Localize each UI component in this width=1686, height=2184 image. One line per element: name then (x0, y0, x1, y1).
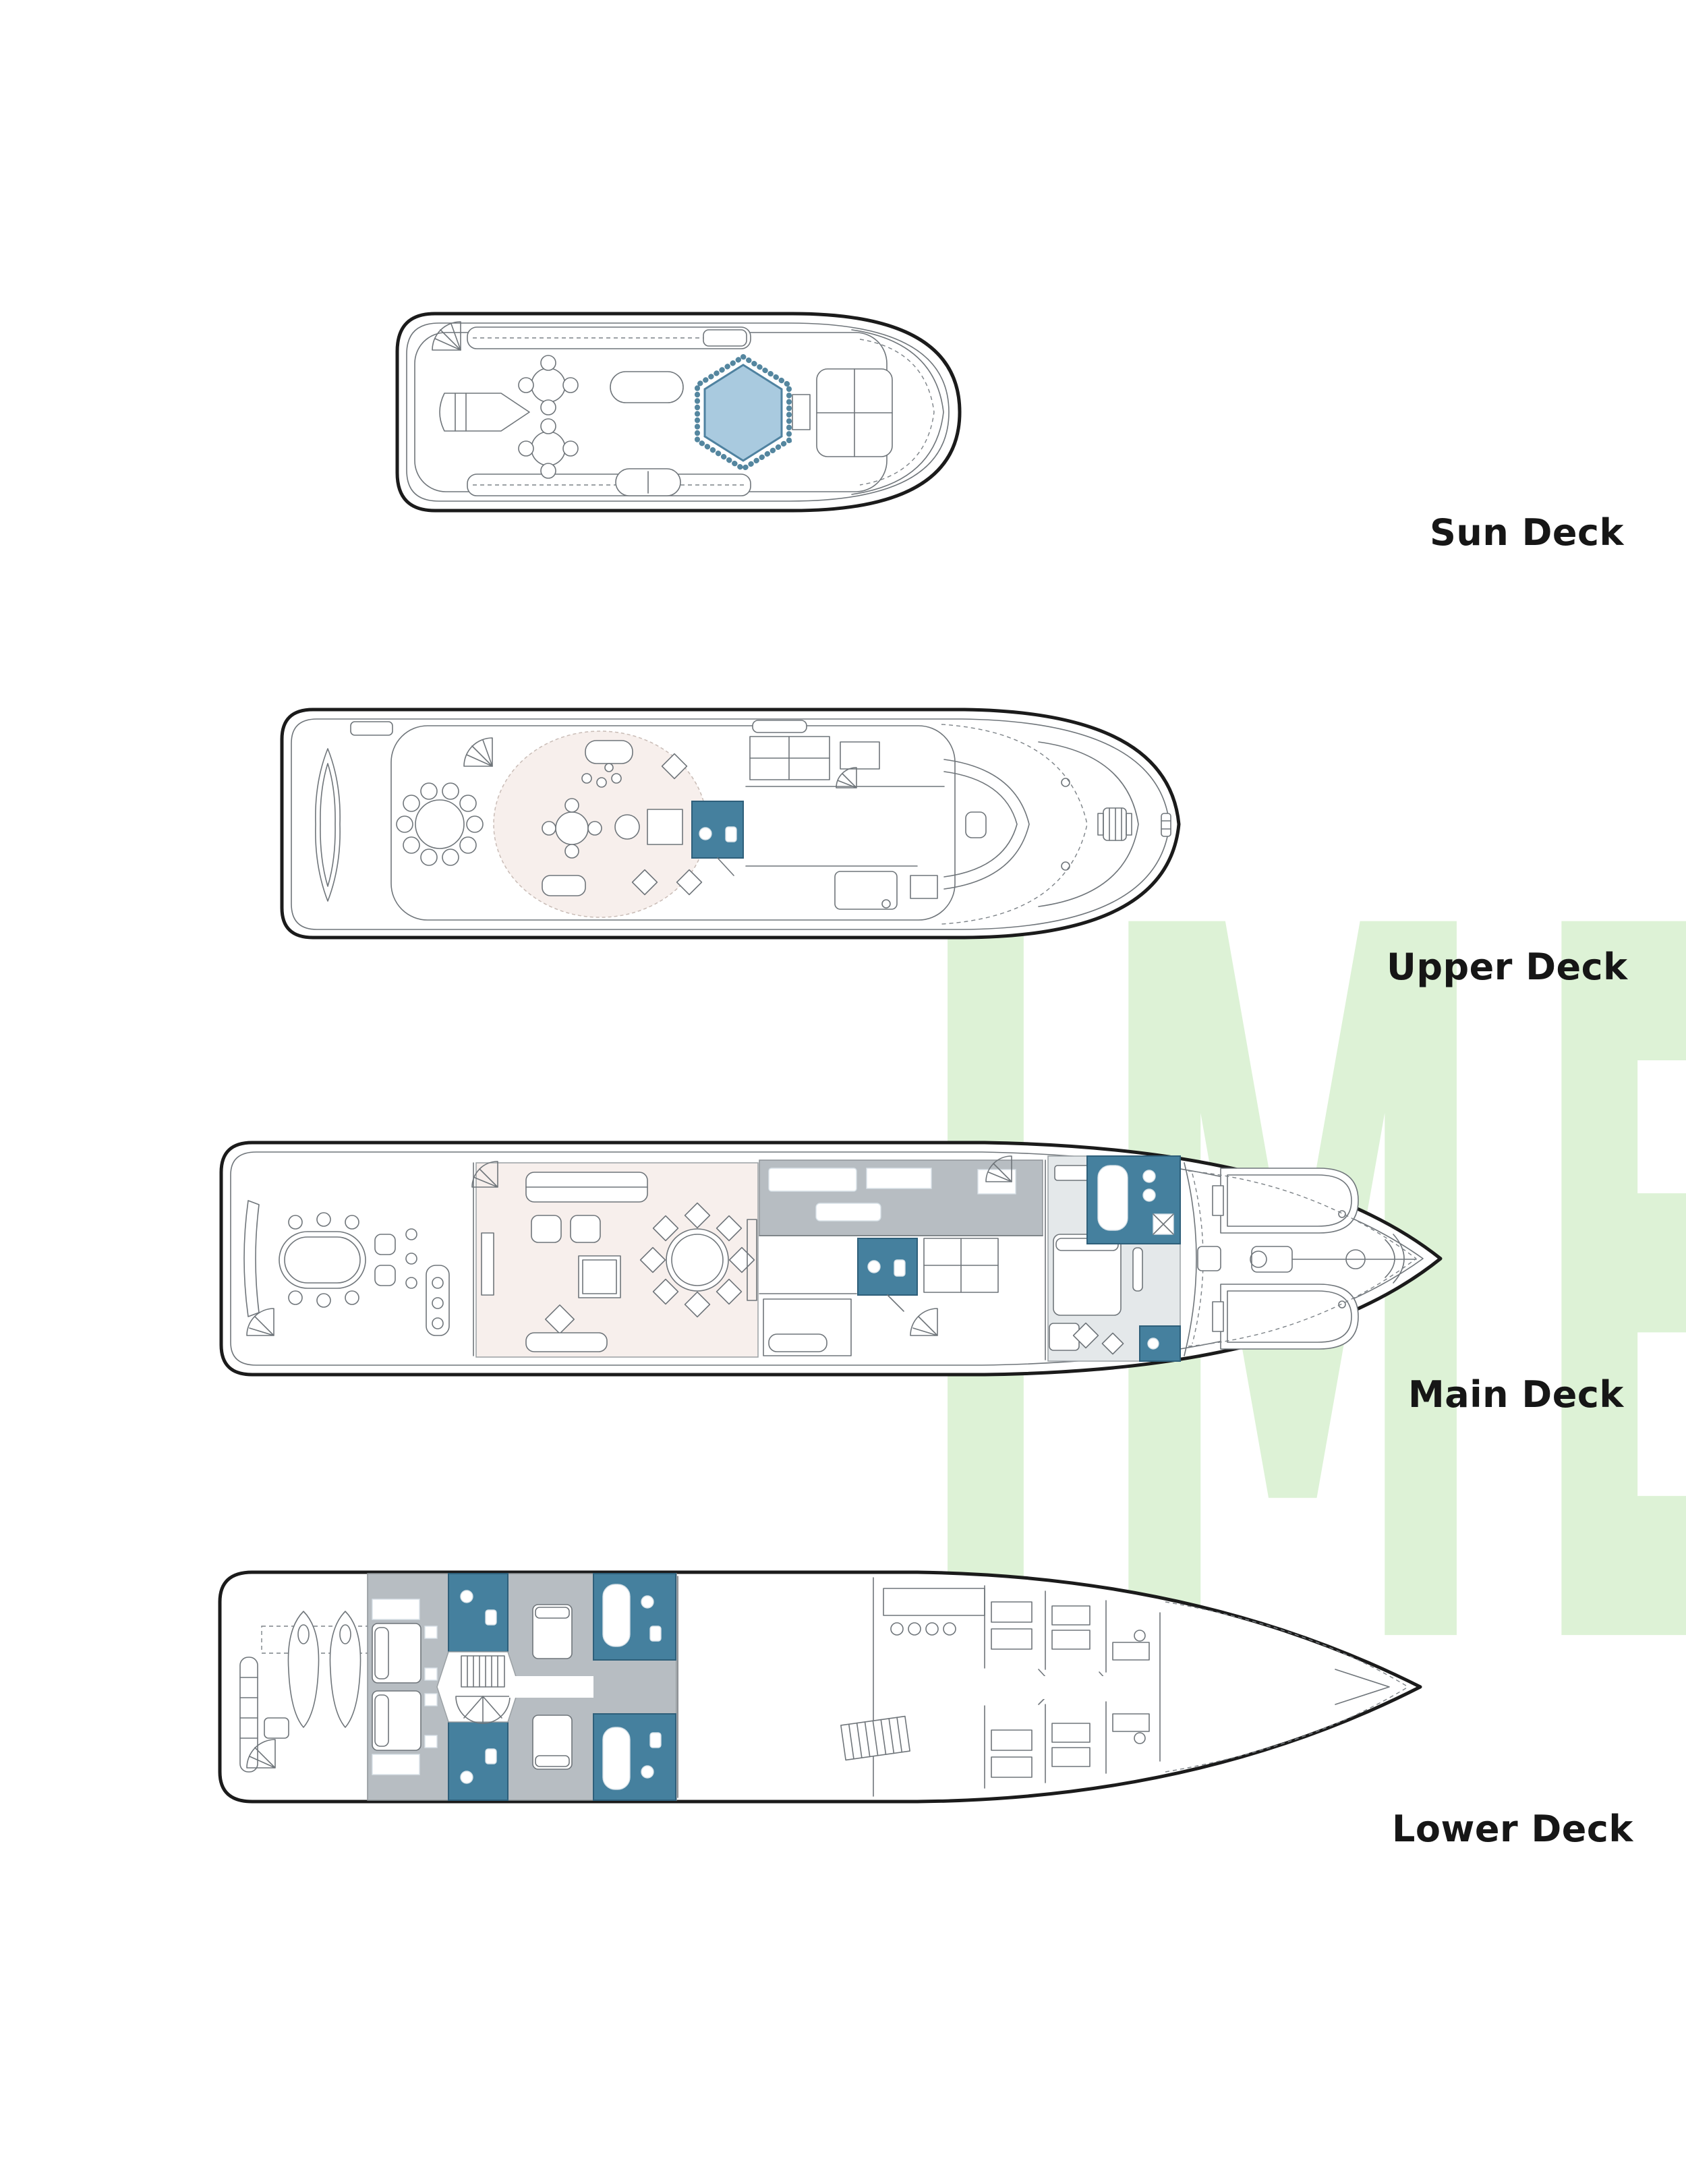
crew-corridor (908, 1676, 1157, 1699)
bathroom-zone (448, 1722, 508, 1800)
bathroom-zone (593, 1714, 676, 1800)
lower-deck-label: Lower Deck (1392, 1808, 1633, 1850)
aft-locker (351, 722, 393, 735)
lower-deck-plan (202, 1561, 1430, 1812)
upper-deck-label: Upper Deck (1387, 946, 1628, 988)
bathroom-zone (1140, 1326, 1180, 1361)
master-bathroom-zone (1087, 1156, 1180, 1244)
sun-deck-plan (388, 307, 968, 516)
main-deck-plan (209, 1133, 1450, 1384)
deck-hatch (703, 330, 747, 346)
bathroom-zone (593, 1574, 676, 1660)
yacht-deck-plans-page: { "watermark": { "text": "IME" }, "decks… (0, 0, 1686, 2184)
corridor (509, 1676, 593, 1698)
sun-pad (610, 372, 683, 403)
sun-pads-forward (817, 369, 892, 457)
seat-capsule (616, 469, 680, 496)
galley-zone (759, 1156, 1043, 1236)
sun-deck-label: Sun Deck (1430, 511, 1624, 554)
upper-deck-plan (270, 701, 1187, 944)
stair-lobby (437, 1652, 519, 1723)
main-deck-label: Main Deck (1408, 1373, 1624, 1416)
bathroom-zone (448, 1574, 508, 1652)
